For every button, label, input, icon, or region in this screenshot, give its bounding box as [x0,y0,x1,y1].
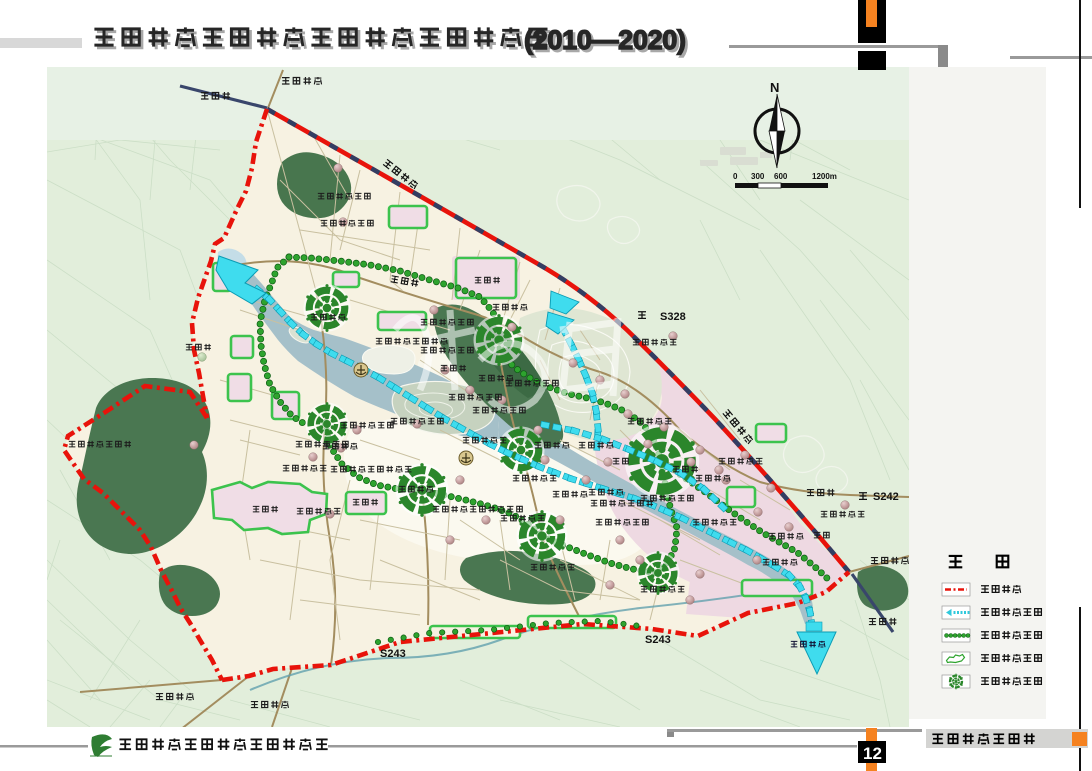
svg-text:600: 600 [774,172,788,181]
svg-text:S243: S243 [645,634,671,646]
svg-text:(2010—2020): (2010—2020) [524,25,686,55]
svg-text:300: 300 [751,172,765,181]
svg-text:S242: S242 [873,491,899,503]
svg-text:1200m: 1200m [812,172,837,181]
svg-text:0: 0 [733,172,738,181]
svg-text:S328: S328 [660,311,686,323]
svg-text:S243: S243 [380,648,406,660]
svg-text:12: 12 [863,744,882,763]
svg-text:N: N [770,80,779,95]
